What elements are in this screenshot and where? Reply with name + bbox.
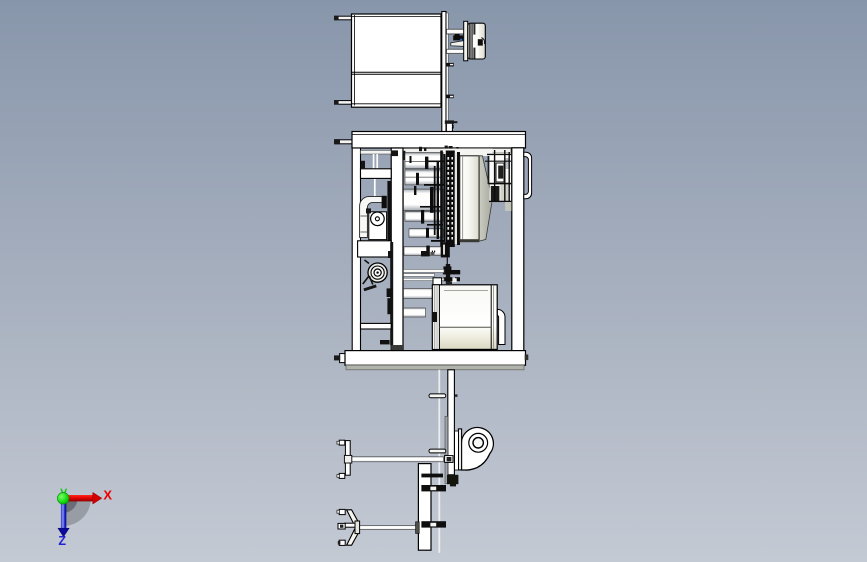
svg-text:Z: Z [58,534,66,548]
svg-text:X: X [103,488,112,503]
